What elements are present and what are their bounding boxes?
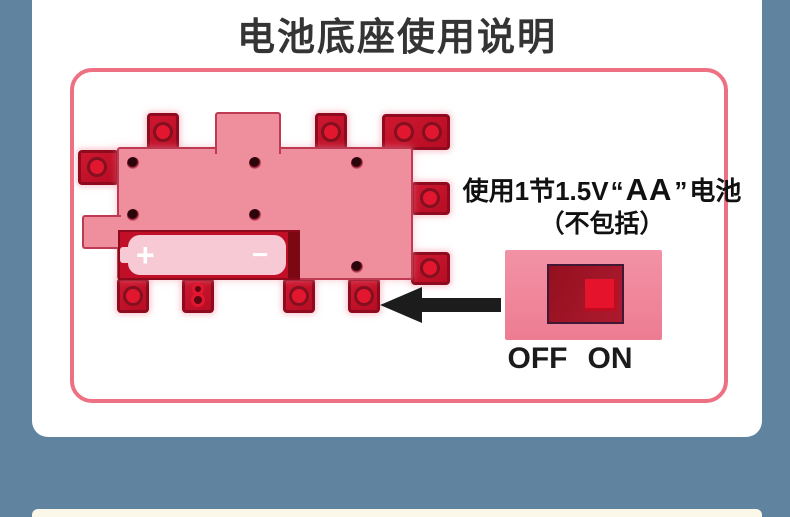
arrow-left-icon <box>378 285 503 325</box>
battery-minus-label: − <box>252 239 268 271</box>
switch-knob <box>585 279 617 311</box>
battery-spec-text: 使用1节1.5V“AA”电池 （不包括） <box>452 174 752 239</box>
stud-hole-icon <box>87 157 107 177</box>
page-title: 电池底座使用说明 <box>32 6 762 61</box>
stud-hole-icon <box>422 122 442 142</box>
close-quote: ” <box>674 176 687 206</box>
battery-type: AA <box>626 172 673 207</box>
battery-contact <box>288 232 300 278</box>
screw-hole-icon <box>249 209 261 221</box>
switch-labels: OFF ON <box>495 342 645 376</box>
switch-on-label: ON <box>588 342 633 376</box>
screw-hole-icon <box>127 209 139 221</box>
base-left-notch <box>82 215 121 249</box>
power-switch <box>505 250 662 340</box>
stud-hole-icon <box>394 122 414 142</box>
stud-hole-icon <box>420 258 440 278</box>
screw-hole-icon <box>127 157 139 169</box>
switch-recess <box>547 264 624 324</box>
screw-hole-icon <box>249 157 261 169</box>
screw-hole-icon <box>351 261 363 273</box>
battery-spec-line: 使用1节1.5V“AA”电池 <box>452 174 752 207</box>
screw-hole-icon <box>351 157 363 169</box>
open-quote: “ <box>611 176 624 206</box>
stud-hole-icon <box>289 286 309 306</box>
stud-hole-icon <box>123 286 143 306</box>
stud-hole-icon <box>153 122 173 142</box>
stud-hole-icon <box>420 188 440 208</box>
battery-plus-label: + <box>136 237 155 274</box>
stud-hole-icon <box>354 286 374 306</box>
spec-suffix: 电池 <box>689 176 741 206</box>
page: 电池底座使用说明 <box>0 0 790 517</box>
keyhole-8-icon <box>191 293 205 307</box>
switch-off-label: OFF <box>508 342 568 376</box>
base-top-bump <box>215 112 281 154</box>
battery-note-text: （不包括） <box>452 209 752 239</box>
stud-hole-icon <box>321 122 341 142</box>
spec-prefix: 使用1节1.5V <box>463 176 609 206</box>
next-section-strip <box>32 509 762 517</box>
